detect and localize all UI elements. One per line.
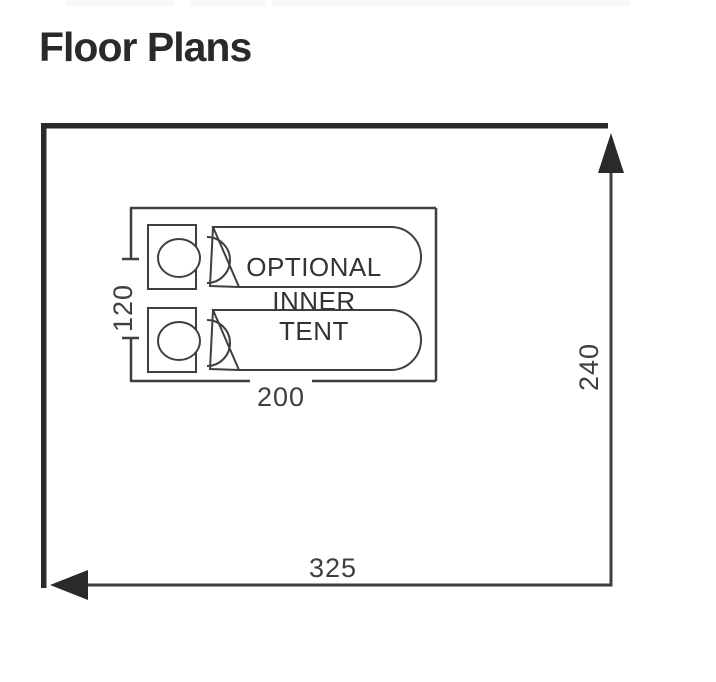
inner-tent-label-line3: TENT bbox=[279, 316, 349, 346]
tent-top-wall bbox=[41, 123, 608, 129]
inner-height-label: 120 bbox=[108, 284, 138, 332]
pillow-ellipse bbox=[158, 322, 200, 360]
tent-left-wall bbox=[41, 123, 47, 588]
floor-plan-diagram: 325 240 120 200 bbox=[0, 0, 716, 682]
width-dimension-arrowhead bbox=[50, 570, 88, 600]
height-dimension-label: 240 bbox=[574, 343, 604, 391]
floor-plans-page: Floor Plans 325 240 120 200 bbox=[0, 0, 716, 682]
width-dimension-label: 325 bbox=[309, 553, 357, 583]
height-dimension-arrowhead bbox=[598, 133, 624, 173]
inner-tent-label-line2: INNER bbox=[272, 286, 355, 316]
inner-width-label: 200 bbox=[257, 382, 305, 412]
pillow-ellipse bbox=[158, 239, 200, 277]
inner-tent-label-line1: OPTIONAL bbox=[246, 252, 381, 282]
